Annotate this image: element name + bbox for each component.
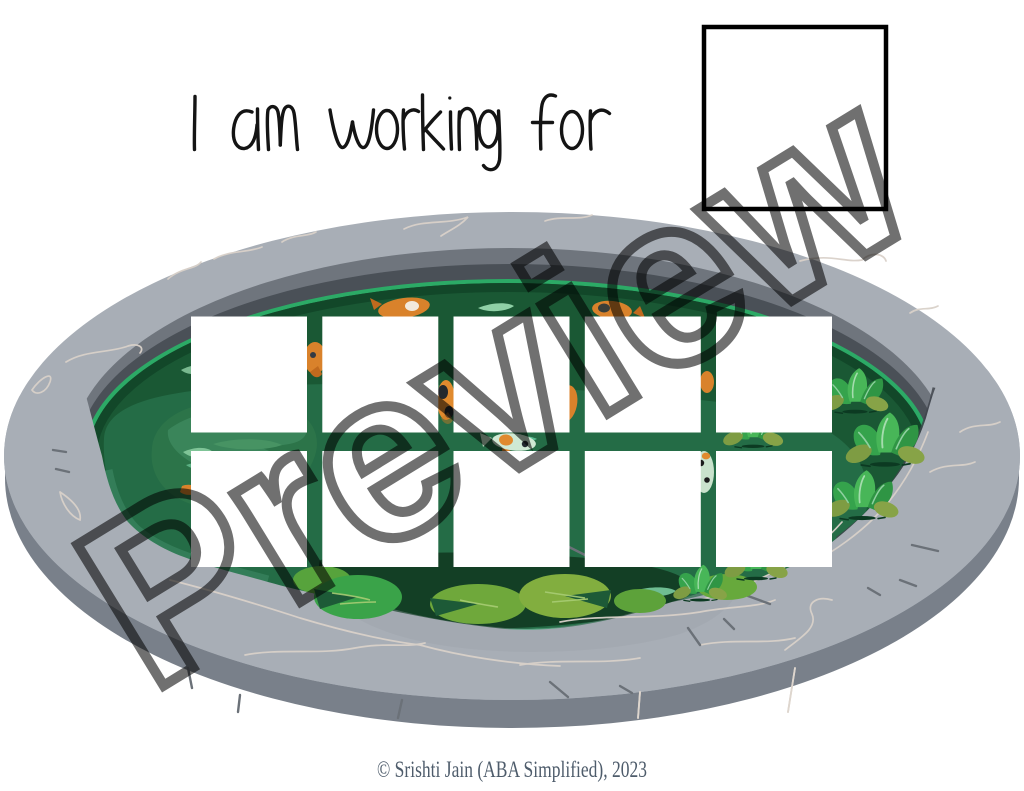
svg-text:© Srishti Jain (ABA Simplified: © Srishti Jain (ABA Simplified), 2023 [377,757,647,782]
